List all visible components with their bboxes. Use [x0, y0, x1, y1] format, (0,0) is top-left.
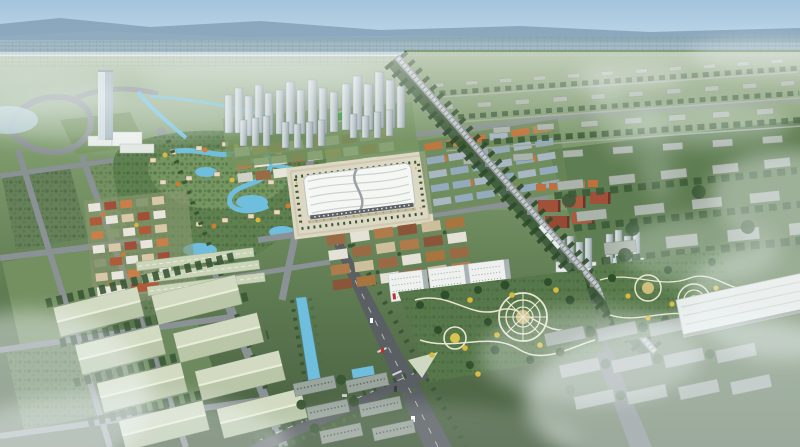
aerial-city-rendering	[0, 0, 800, 447]
scene-canvas	[0, 0, 800, 447]
